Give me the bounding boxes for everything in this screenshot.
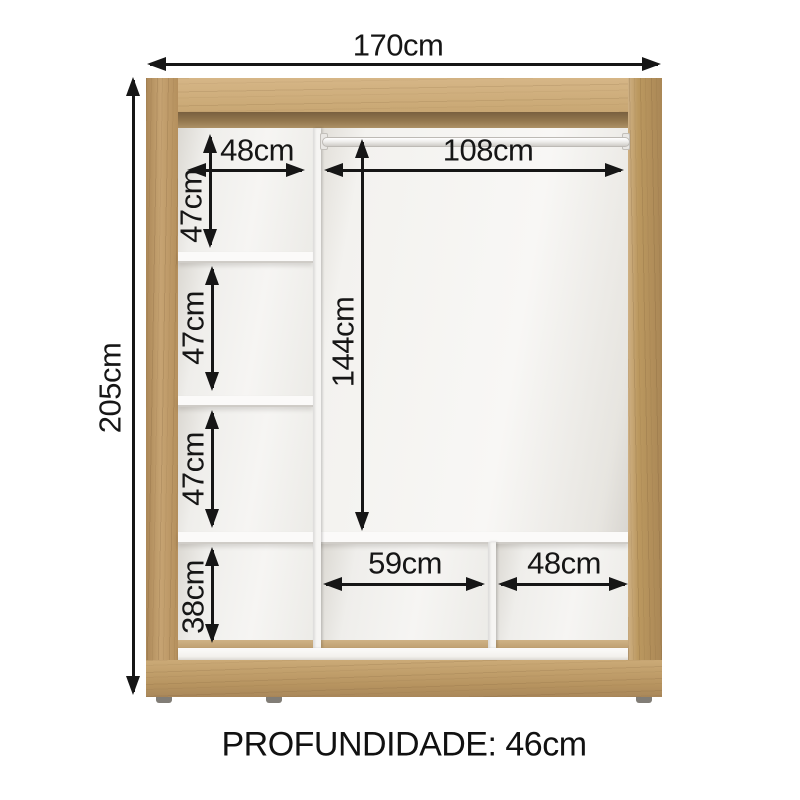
bottom-cell-2-width-label: 48cm — [527, 548, 601, 579]
cell-2-height-label: 47cm — [178, 291, 209, 365]
arrowhead-down-icon — [355, 512, 369, 531]
hanging-height-arrow — [355, 139, 369, 531]
dimension-line — [501, 583, 625, 586]
dimension-line — [326, 583, 482, 586]
cell-4-height-arrow — [205, 547, 219, 643]
shelf-2 — [178, 396, 313, 407]
bottom-cell-1-width-arrow — [323, 577, 485, 591]
arrowhead-down-icon — [205, 624, 219, 643]
cabinet-foot — [156, 697, 172, 703]
bottom-cell-1-width-label: 59cm — [368, 548, 442, 579]
cabinet-foot — [266, 697, 282, 703]
wardrobe-right-panel — [628, 78, 662, 660]
top-panel-inner-edge — [172, 112, 636, 128]
furniture-dimension-diagram: 170cm 205cm — [0, 0, 800, 800]
center-divider — [313, 128, 321, 648]
cabinet-foot — [636, 697, 652, 703]
wardrobe-left-panel — [146, 78, 178, 660]
arrowhead-down-icon — [205, 372, 219, 391]
arrowhead-right-icon — [605, 163, 624, 177]
full-width-shelf — [178, 532, 628, 544]
dimension-line — [132, 80, 135, 692]
hanging-width-arrow — [324, 163, 624, 177]
left-column-width-label: 48cm — [220, 135, 294, 166]
arrowhead-down-icon — [205, 509, 219, 528]
arrowhead-right-icon — [609, 577, 628, 591]
wardrobe-base-panel — [146, 660, 662, 697]
arrowhead-down-icon — [126, 676, 140, 695]
overall-width-label: 170cm — [353, 30, 444, 61]
bottom-divider — [488, 542, 496, 648]
dimension-line — [361, 142, 364, 528]
cell-1-height-label: 47cm — [176, 169, 207, 243]
depth-note: PROFUNDIDADE: 46cm — [221, 726, 586, 765]
arrowhead-right-icon — [466, 577, 485, 591]
cell-3-height-label: 47cm — [178, 432, 209, 506]
hanging-width-label: 108cm — [443, 135, 534, 166]
cell-2-height-arrow — [205, 266, 219, 391]
overall-height-arrow — [126, 77, 140, 695]
shelf-1 — [178, 252, 313, 263]
bottom-cell-2-width-arrow — [498, 577, 628, 591]
overall-height-label: 205cm — [95, 343, 126, 434]
cabinet-floor — [178, 640, 628, 648]
hanging-height-label: 144cm — [328, 297, 359, 388]
cell-4-height-label: 38cm — [178, 560, 209, 634]
arrowhead-down-icon — [203, 229, 217, 248]
base-front-trim — [178, 648, 628, 660]
dimension-line — [327, 169, 621, 172]
overall-width-arrow — [147, 57, 661, 71]
dimension-line — [150, 63, 658, 66]
cell-1-height-arrow — [203, 134, 217, 248]
arrowhead-right-icon — [286, 163, 305, 177]
cell-3-height-arrow — [205, 410, 219, 528]
dimension-line — [211, 269, 214, 388]
arrowhead-right-icon — [642, 57, 661, 71]
